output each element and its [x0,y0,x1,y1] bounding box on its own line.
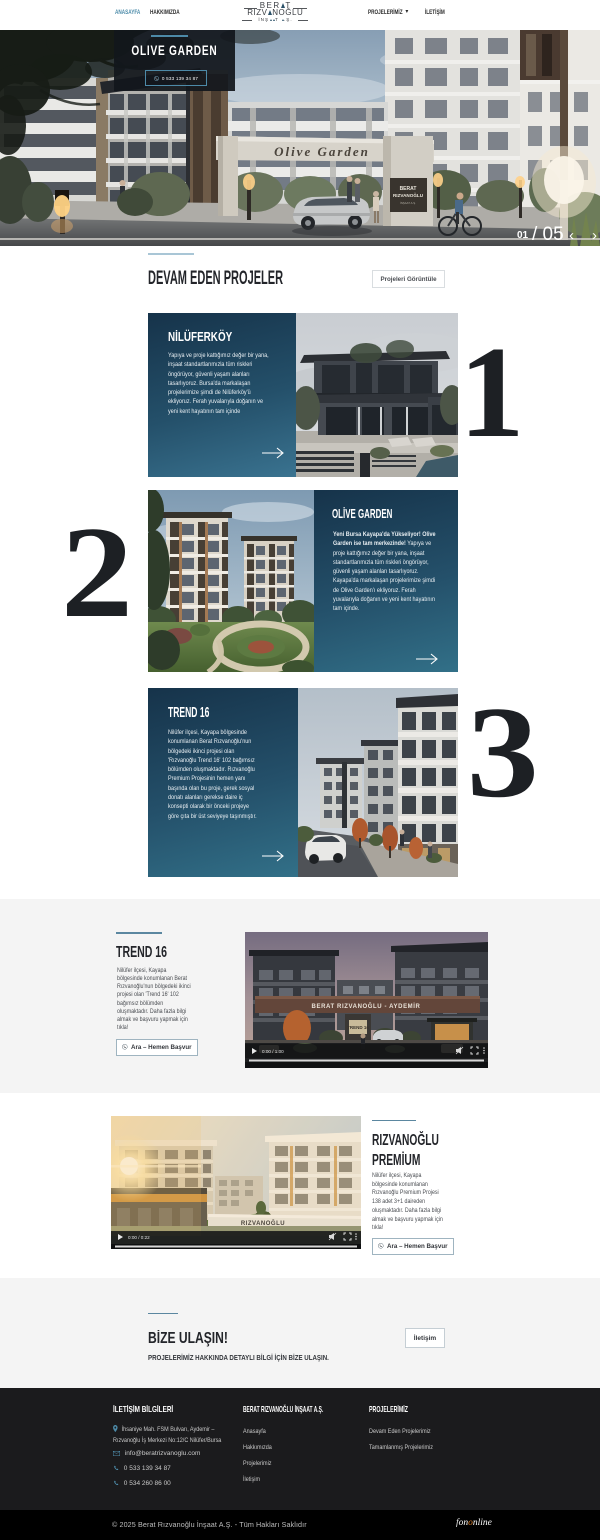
svg-text:TREND 16: TREND 16 [347,1025,369,1030]
svg-text:BERAT: BERAT [400,186,417,192]
svg-text:RIZVANOĞLU: RIZVANOĞLU [393,191,424,198]
svg-text:Olive Garden: Olive Garden [274,144,370,159]
svg-text:BERAT RIZVANOĞLU - AYDEMİR: BERAT RIZVANOĞLU - AYDEMİR [312,1002,421,1010]
svg-text:0:00 / 1:00: 0:00 / 1:00 [262,1049,284,1054]
svg-text:0:00 / 0:22: 0:00 / 0:22 [128,1235,150,1240]
svg-text:İNŞAAT A.Ş.: İNŞAAT A.Ş. [400,200,416,205]
